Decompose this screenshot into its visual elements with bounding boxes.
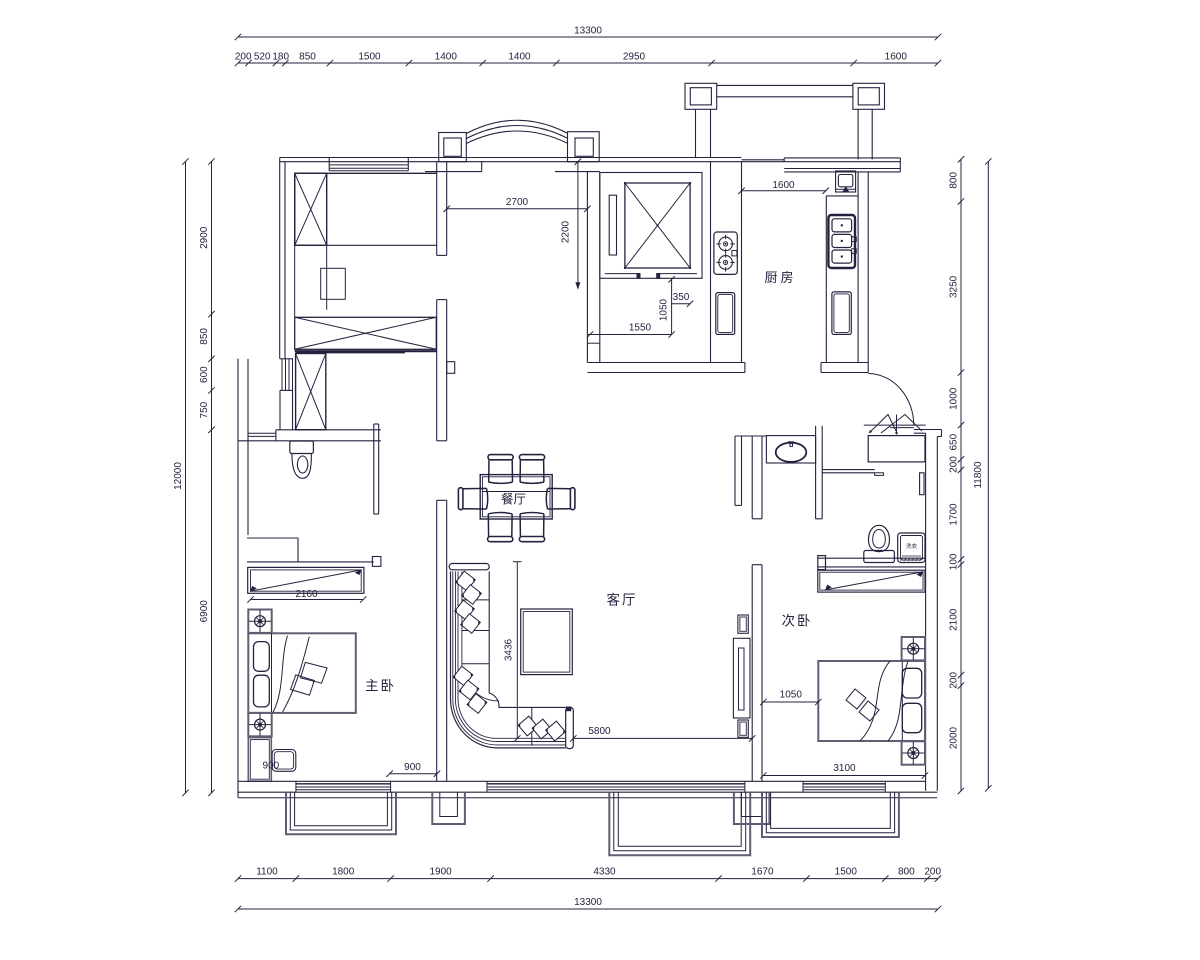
svg-text:洗衣: 洗衣 <box>906 542 918 550</box>
svg-text:13300: 13300 <box>574 26 602 37</box>
svg-text:1550: 1550 <box>629 323 652 334</box>
svg-text:1500: 1500 <box>358 52 381 63</box>
svg-text:2100: 2100 <box>949 608 960 631</box>
svg-text:1900: 1900 <box>429 867 452 878</box>
svg-text:200: 200 <box>235 52 252 63</box>
svg-text:11800: 11800 <box>973 461 984 489</box>
svg-text:800: 800 <box>949 172 960 189</box>
svg-text:5800: 5800 <box>588 726 611 737</box>
svg-text:200: 200 <box>924 867 941 878</box>
svg-text:主卧: 主卧 <box>365 679 396 694</box>
svg-text:200: 200 <box>949 456 960 473</box>
svg-text:4330: 4330 <box>593 867 616 878</box>
svg-text:1050: 1050 <box>659 298 670 321</box>
svg-text:2000: 2000 <box>949 726 960 749</box>
svg-text:900: 900 <box>263 761 280 772</box>
svg-text:次卧: 次卧 <box>782 614 813 629</box>
svg-text:1600: 1600 <box>772 180 795 191</box>
svg-text:850: 850 <box>199 328 210 345</box>
svg-text:600: 600 <box>199 366 210 383</box>
svg-text:800: 800 <box>898 867 915 878</box>
svg-text:6900: 6900 <box>199 600 210 623</box>
svg-text:1050: 1050 <box>780 690 803 701</box>
svg-text:12000: 12000 <box>173 462 184 490</box>
svg-text:2160: 2160 <box>295 589 318 600</box>
svg-text:2950: 2950 <box>623 52 646 63</box>
svg-text:1600: 1600 <box>885 52 908 63</box>
svg-text:1500: 1500 <box>835 867 858 878</box>
svg-text:客厅: 客厅 <box>607 592 638 608</box>
svg-text:厨房: 厨房 <box>764 270 796 285</box>
svg-text:350: 350 <box>673 292 690 303</box>
svg-text:13300: 13300 <box>574 897 602 908</box>
svg-text:2200: 2200 <box>561 220 572 243</box>
svg-text:100: 100 <box>949 553 960 570</box>
svg-text:1670: 1670 <box>751 867 774 878</box>
svg-text:650: 650 <box>949 433 960 450</box>
svg-text:1000: 1000 <box>949 387 960 410</box>
svg-text:1400: 1400 <box>435 52 458 63</box>
svg-text:3250: 3250 <box>949 275 960 298</box>
svg-text:900: 900 <box>404 762 421 773</box>
svg-text:180: 180 <box>272 52 289 63</box>
svg-text:520: 520 <box>254 52 271 63</box>
svg-text:3100: 3100 <box>833 763 856 774</box>
svg-text:餐厅: 餐厅 <box>501 492 526 507</box>
svg-text:750: 750 <box>199 401 210 418</box>
svg-text:850: 850 <box>299 52 316 63</box>
svg-text:1400: 1400 <box>508 52 531 63</box>
svg-text:1700: 1700 <box>949 503 960 526</box>
svg-text:2900: 2900 <box>199 226 210 249</box>
svg-text:200: 200 <box>949 672 960 689</box>
svg-text:3436: 3436 <box>504 638 515 661</box>
svg-text:1100: 1100 <box>256 867 278 878</box>
svg-text:1800: 1800 <box>332 867 355 878</box>
svg-text:2700: 2700 <box>506 197 529 208</box>
